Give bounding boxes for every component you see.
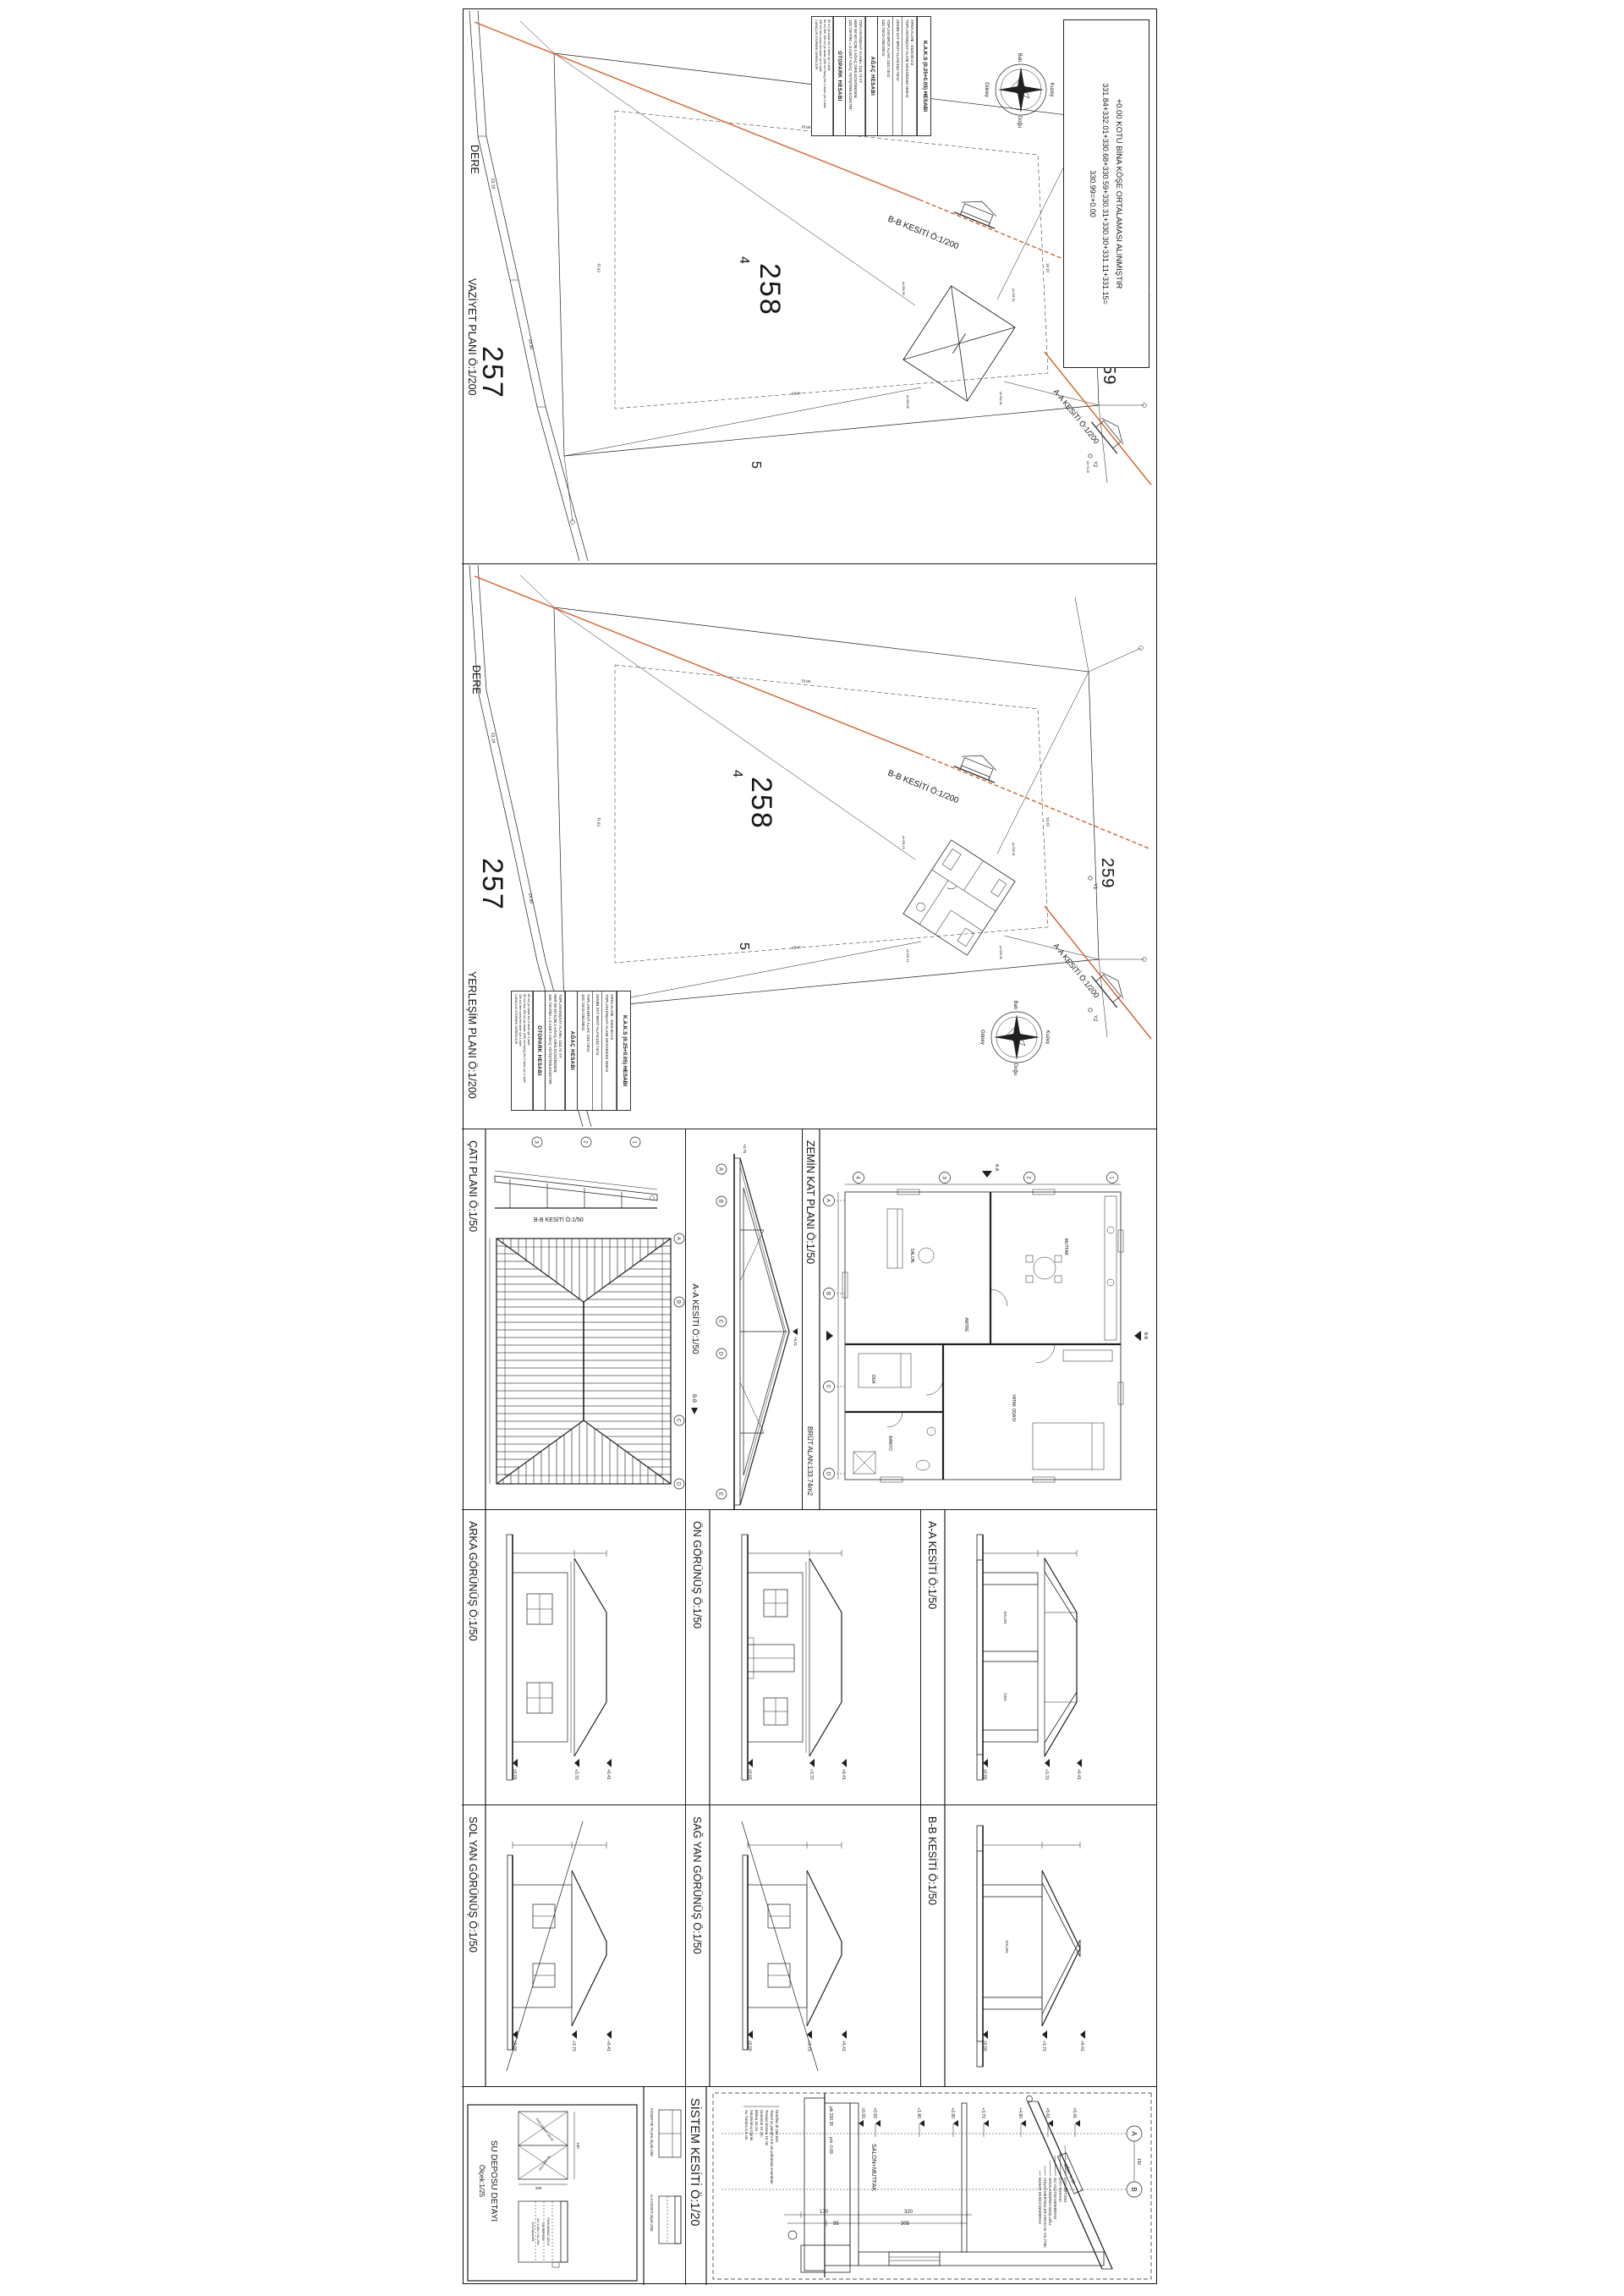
setback-line (615, 111, 1048, 409)
room-label-banyo: BANYO (887, 1436, 892, 1451)
yerlesim-plani-label: YERLEŞİM PLANI Ö:1/200 (466, 971, 478, 1099)
otopark-title: OTOPARK HESABI (833, 17, 846, 135)
svg-text:Doğu: Doğu (1012, 1063, 1018, 1075)
svg-text:3: 3 (534, 1140, 539, 1144)
corner-level: pk:330.59 (902, 282, 905, 295)
tank-plan-note: SU DEPOSU (538, 2155, 551, 2172)
section-line-aa (1045, 906, 1151, 1039)
svg-text:1: 1 (632, 1140, 637, 1144)
kaks-table-2: K.A.K.S (0.25+0.05) HESABI ARSA ALANI : … (511, 991, 631, 1111)
parcel-dim: 19.99 (801, 678, 811, 684)
sol-yan-gorunus-label: SOL YAN GÖRÜNÜŞ Ö:1/50 (467, 1816, 479, 1953)
tank-note: PASLANMAZ ÇELİK (546, 2218, 551, 2246)
roof-layer-note: AHŞAP MERTEKLER ARASI ISI YALITIMI (1043, 2178, 1047, 2248)
roof-detail-label: B-B KESİTİ Ö:1/50 (534, 1216, 584, 1223)
zemin-kat-plani-label: ZEMİN KAT PLANI Ö:1/50 (804, 1140, 816, 1264)
cati-plani-label: ÇATI PLANI Ö:1/50 (467, 1140, 479, 1232)
section-house-bb (954, 747, 1002, 783)
level-flag: +2.80 (950, 2107, 955, 2118)
su-deposu-scale: Ölçek:1/25 (478, 2165, 486, 2198)
grid-bubble-b: B (1130, 2187, 1138, 2191)
floor-layer-note: Blokaj 15 cm (754, 2110, 759, 2131)
dim-170: 170 (820, 2210, 829, 2215)
roof-layer-note: BUHAR KESİCİ MEMBRAN (1038, 2178, 1042, 2224)
tank-note: 2m3 kapasiteli (531, 2222, 535, 2242)
corner-level: pk:330.30 (999, 946, 1002, 959)
agac-title: AĞAÇ HESABI (865, 17, 878, 135)
stream-line (478, 11, 588, 561)
level-flag: ±0.00 (747, 1769, 752, 1780)
svg-text:Batı: Batı (1012, 1001, 1018, 1010)
svg-text:C: C (676, 1419, 681, 1423)
agac-row: HER 50 M2 İÇİN 1 AĞAÇ DİKİLECEĞİNDEN; (552, 994, 557, 1107)
svg-text:D: D (826, 1472, 831, 1476)
section-marker-aa: A-A (994, 1164, 999, 1172)
roof-layer-note: ÇATI TAHTASI (1058, 2178, 1062, 2202)
svg-text:1: 1 (1109, 1176, 1114, 1179)
svg-text:D: D (676, 1482, 681, 1486)
parcel-number-257: 257 (476, 346, 508, 399)
parcel-dim: 19.99 (801, 124, 811, 129)
level-flag: ±0.00 (860, 2108, 865, 2119)
level-flag: +6.41 (841, 2041, 846, 2052)
sol-yan-panel: +6.41 +3.70 ±0.00 SOL YAN GÖRÜNÜŞ Ö:1/50 (462, 1804, 686, 2086)
agac-row: 133.74m²/50 = 3 ADET AĞAÇ YETİŞTİRİLECEK… (848, 19, 853, 133)
stream-dim: 24.80 (527, 893, 534, 904)
room-label-oda: ODA (870, 1375, 875, 1385)
section-marker-bb: B-B (691, 1394, 696, 1403)
level-ridge: +6.41 (793, 1337, 798, 1347)
level-flag: +6.41 (606, 1769, 611, 1780)
level-flag: ±0.00 (982, 1769, 987, 1780)
svg-text:Doğu: Doğu (1017, 116, 1022, 128)
panel-divider (462, 563, 1156, 564)
roof-layer-note: SU YALITIM MEMBRANI (1053, 2178, 1057, 2219)
kaks-table-1: K.A.K.S (0.25+0.05) HESABI ARSA ALANI : … (811, 16, 931, 136)
section-label-bb: B-B KESİTİ Ö:1/200 (886, 213, 961, 252)
survey-point-y1: Y1 (1092, 883, 1097, 890)
roof-edge-detail: B-B KESİTİ Ö:1/50 (495, 1171, 657, 1223)
section-room-label: ODA (1003, 1693, 1007, 1701)
corner-level: pk:331.15 (902, 836, 905, 849)
corner-level: pk:330.31 (1012, 843, 1015, 856)
svg-text:B: B (826, 1292, 831, 1295)
kaks-row: ARSA ALANI : 8110.00 m2 (909, 19, 914, 133)
room-label-yatak: YATAK ODASI (1011, 1394, 1016, 1421)
sag-yan-panel: +6.41 +3.70 ±0.00 SAĞ YAN GÖRÜNÜŞ Ö:1/50 (686, 1804, 921, 2086)
compass-icon: Kuzey Doğu Güney Batı (984, 53, 1054, 129)
parcel-dim: 11.93 (596, 817, 601, 827)
svg-text:Kuzey: Kuzey (1049, 83, 1054, 97)
level-flag: +0.50 (872, 2107, 877, 2118)
foseptik-kesiti-label: A-A KESİTİ ölçek:1/50 (650, 2194, 654, 2232)
on-gorunus-label: ÖN GÖRÜNÜŞ Ö:1/50 (691, 1521, 703, 1629)
parcel-dim: 19.10 (1045, 263, 1051, 273)
floor-layer-note: Tesviye betonu 10 cm (765, 2110, 769, 2146)
parcel-number-4: 4 (737, 256, 751, 264)
agac-row: TOPLAM İNŞAAT ALANI= 133.74 m² (557, 994, 562, 1107)
section-label-aa: A-A KESİTİ Ö:1/200 (1051, 942, 1100, 1000)
svg-text:A: A (718, 1167, 723, 1171)
plk-level: plk:330.30 (828, 2106, 833, 2126)
room-label-antre: ANTRE (963, 1318, 968, 1333)
agac-row: 133.74m²/50 = 3 ADET AĞAÇ YETİŞTİRİLECEK… (547, 994, 552, 1107)
level-flag: +3.70 (806, 2041, 811, 2052)
kaks-row: ARSA ALANI : 8110.00 m2 (609, 994, 614, 1107)
roof-layer-note: HAVALANDIRMA BOŞLUĞU (1048, 2178, 1052, 2225)
kaks-row: TOPLAM BRÜT ALAN :133.74m2 (886, 19, 891, 133)
dim-320: 320 (904, 2210, 913, 2215)
svg-text:B: B (676, 1300, 681, 1304)
survey-point-y2-level: pk:+6.16 (1086, 461, 1089, 473)
level-flag: +4.80 (1018, 2107, 1023, 2118)
parcel-dim: 14.93 (791, 945, 801, 950)
parcel-number-257: 257 (476, 858, 508, 911)
panel-divider (462, 1509, 1156, 1510)
note-line1: +0.00 KOTU BİNA KÖŞE ORTALAMASI ALINMIŞT… (1115, 20, 1124, 367)
stream-dim: 23.19 (490, 733, 496, 744)
otopark-row: 1 ARAÇLIK OTOPARK GEREKLİDİR (814, 19, 818, 133)
kaks-title: K.A.K.S (0.25+0.05) HESABI (917, 17, 930, 135)
section-label-bb: B-B KESİTİ Ö:1/200 (886, 767, 961, 806)
floor-layer-note: Su Yalıtımı 0.5 cm (744, 2110, 749, 2140)
otopark-row: 80 m2 ye kadar her 3 daire için 1 adet (526, 994, 530, 1107)
sistem-kesiti-label: SİSTEM KESİTİ Ö:1/20 (688, 2098, 703, 2227)
tank-note: 2m 1.20m x h1.20m (536, 2218, 540, 2245)
room-label-mutfak: MUTFAK (1063, 1239, 1068, 1256)
room-label-salon: SALON (909, 1249, 914, 1263)
brut-alan-label: BRÜT ALAN:133.74m2 (806, 1426, 814, 1497)
level-flag: ±0.00 (982, 2041, 987, 2052)
tank-plan-note: PASLANMAZ ÇELİK (535, 2117, 556, 2142)
section-room-label: SALON (1005, 1941, 1009, 1953)
parcel-dim: 19.10 (1045, 817, 1051, 827)
svg-text:2: 2 (1026, 1176, 1031, 1179)
otopark-row: 80 m2 den 150 m2 ye kadar (150 m2 hariç)… (522, 994, 526, 1107)
sistem-kesiti-panel: A B 130 EĞİM % 33 ÇATI ÖRTÜSÜ ÇATI TAHTA… (686, 2086, 1156, 2285)
on-gorunus-panel: +6.41 +3.70 ±0.00 ÖN GÖRÜNÜŞ Ö:1/50 (686, 1509, 921, 1804)
section-line-bb (475, 576, 919, 754)
panel-divider (685, 1129, 686, 2285)
site-plan-vaziyet: 23.19 24.80 19.99 19.10 14.93 11.93 pk:3… (462, 9, 1156, 563)
level-flag: +3.70 (809, 1769, 814, 1780)
kaks-row: ZEMİN KAT BRÜT ALAN:133.74m2 (895, 19, 900, 133)
dim-305: 305 (901, 2222, 910, 2227)
level-flag: +3.70 (571, 2041, 576, 2052)
otopark-row: 80 m2 den 150 m2 ye kadar (150 m2 hariç)… (822, 19, 826, 133)
level-flag: +3.70 (573, 1769, 579, 1780)
cati-aa-kesiti: +6.41 +3.70 A B C D E B-B A-A KESİTİ Ö:1… (686, 1129, 803, 1509)
dim-95: 95 (833, 2222, 839, 2227)
kaks-row: TOPLAM İNŞAAT ALANI MAKSİMUM 250m2 (604, 994, 609, 1107)
cati-plani: B-B KESİTİ Ö:1/50 1 2 3 A B C D ÇATI PLA… (462, 1129, 686, 1509)
kaks-row: TOPLAM BRÜT ALAN :133.74m2 (585, 994, 590, 1107)
floor-layer-note: Drenflex Ø 150 mm (775, 2110, 779, 2142)
kaks-row: 133.74m2<250.00m2 (579, 994, 584, 1107)
building-footprint-roof (903, 286, 1015, 401)
floor-layer-note: Temel su yalıtımı 0.5 cm poliüretan memb… (770, 2110, 774, 2184)
svg-text:Batı: Batı (1017, 53, 1022, 63)
dere-label: DERE (470, 665, 482, 695)
svg-text:A: A (826, 1199, 831, 1202)
parcel-boundary (554, 607, 1099, 1010)
parcel-dim: 14.93 (791, 391, 801, 396)
note-line3: 330.99=+0.00 (1089, 20, 1098, 367)
level-flag: +3.70 (980, 2107, 985, 2118)
level-flag: +3.70 (1041, 2041, 1046, 2052)
su-deposu-title: SU DEPOSU DETAYI (489, 2140, 498, 2222)
section-line-aa (1045, 352, 1151, 485)
svg-text:A: A (676, 1237, 681, 1240)
setback-line (615, 665, 1048, 963)
parcel-number-4: 4 (730, 770, 744, 777)
svg-text:4: 4 (855, 1176, 860, 1179)
floor-layer-note: Sıkıştırılmış toprak (749, 2110, 754, 2141)
level-flag: +6.41 (1072, 2107, 1077, 2118)
svg-text:C: C (718, 1320, 723, 1324)
axis-dim-130: 130 (1136, 2158, 1141, 2166)
section-marker-bb: B-B (1143, 1332, 1148, 1340)
bb-kesiti-panel: SALON +6.41 +3.70 ±0.00 B-B KESİTİ Ö:1/5… (921, 1804, 1156, 2086)
svg-text:D: D (718, 1352, 723, 1356)
panel-divider (920, 1509, 921, 2086)
stream-dim: 23.19 (490, 179, 496, 190)
parcel-number-259: 259 (1098, 858, 1116, 888)
level-flag: ±0.00 (747, 2041, 752, 2052)
foseptik-plani-label: FOSEPTİK PLANI ölçek:1/50 (650, 2108, 654, 2156)
survey-point-y2: Y2 (1092, 1015, 1097, 1022)
zemin-kat-plani: SALON MUTFAK YATAK ODASI ODA BANYO ANTRE… (803, 1129, 1156, 1509)
corner-level: pk:332.01 (999, 392, 1002, 405)
level-flag: ±0.00 (512, 1769, 517, 1780)
svg-text:Güney: Güney (984, 82, 989, 97)
room-label-salon-mutfak: SALON+MUTFAK (870, 2144, 876, 2192)
parcel-number-5: 5 (749, 461, 763, 469)
tank-note: SU DEPOSU (541, 2222, 545, 2241)
arka-gorunus-label: ARKA GÖRÜNÜŞ Ö:1/50 (467, 1521, 479, 1641)
compass-icon: Kuzey Doğu Güney Batı (979, 1001, 1050, 1076)
kaks-row: TOPLAM İNŞAAT ALANI MAKSİMUM 250m2 (904, 19, 909, 133)
kaks-row: 133.74m2<250.00m2 (880, 19, 885, 133)
agac-row: HER 50 M2 İÇİN 1 AĞAÇ DİKİLECEĞİNDEN; (853, 19, 858, 133)
building-footprint-plan (903, 840, 1015, 955)
architectural-sheet-page: 23.19 24.80 19.99 19.10 14.93 11.93 pk:3… (0, 0, 1624, 2296)
grid-bubble-a: A (1130, 2131, 1138, 2136)
survey-point-y2: Y2 (1092, 461, 1097, 468)
level-flag: +6.41 (606, 2041, 611, 2052)
otopark-row: 80 m2 ye kadar her 3 daire için 1 adet (826, 19, 831, 133)
level-flag: +3.70 (1044, 1769, 1049, 1780)
sag-yan-gorunus-label: SAĞ YAN GÖRÜNÜŞ Ö:1/50 (691, 1816, 704, 1954)
section-label-aa: A-A KESİTİ Ö:1/200 (1051, 387, 1100, 446)
svg-text:Kuzey: Kuzey (1045, 1030, 1050, 1045)
roof-layer-note: ÇATI ÖRTÜSÜ (1063, 2178, 1067, 2202)
bb-kesiti-label: B-B KESİTİ Ö:1/50 (926, 1816, 938, 1905)
parcel-number-258: 258 (745, 777, 777, 830)
tank-dim-200: 200 (535, 2186, 542, 2190)
corner-level: pk:330.68 (906, 395, 909, 409)
level-flag: +6.41 (841, 1769, 846, 1780)
svg-text:B: B (718, 1200, 723, 1203)
agac-row: TOPLAM İNŞAAT ALANI= 133.74 m² (858, 19, 863, 133)
cati-aa-kesiti-label: A-A KESİTİ Ö:1/50 (690, 1283, 701, 1354)
svg-text:C: C (826, 1385, 831, 1389)
parcel-number-258: 258 (754, 263, 786, 316)
level-flag: +5.61 (1045, 2107, 1050, 2118)
panel-divider (802, 1129, 803, 1509)
floor-layer-note: Grobeton 10 cm (760, 2110, 764, 2137)
parcel-number-5: 5 (737, 942, 751, 950)
stream-dim: 24.80 (527, 338, 534, 350)
level-flag: +1.80 (916, 2107, 921, 2118)
drawing-sheet: 23.19 24.80 19.99 19.10 14.93 11.93 pk:3… (463, 8, 1157, 2284)
vaziyet-plani-label: VAZİYET PLANI Ö:1/200 (466, 278, 478, 396)
section-house-bb (954, 193, 1002, 228)
dere-label: DERE (469, 145, 480, 174)
corner-level: pk:331.11 (906, 949, 909, 963)
aa-kesiti-panel: SALON ODA +6.41 +3.70 ±0.00 A-A KESİTİ Ö… (921, 1509, 1156, 1804)
svg-text:3: 3 (941, 1176, 946, 1179)
otopark-row: 1 ARAÇLIK OTOPARK GEREKLİDİR (513, 994, 518, 1107)
aa-kesiti-label: A-A KESİTİ Ö:1/50 (926, 1521, 938, 1609)
svg-text:2: 2 (583, 1140, 588, 1144)
level-flag: +6.41 (1076, 1769, 1081, 1780)
kaks-row: ZEMİN KAT BRÜT ALAN:133.74m2 (595, 994, 600, 1107)
panel-divider (462, 1804, 1156, 1805)
corner-level: pk:331.84 (1012, 288, 1015, 302)
svg-text:Güney: Güney (979, 1030, 985, 1045)
otopark-title: OTOPARK HESABI (533, 991, 546, 1110)
agac-title: AĞAÇ HESABI (565, 991, 578, 1110)
kaks-title: K.A.K.S (0.25+0.05) HESABI (617, 991, 630, 1110)
parcel-dim: 11.93 (596, 263, 601, 273)
su-deposu-panel: FOSEPTİK PLANI ölçek:1/50 A-A KESİTİ ölç… (462, 2086, 686, 2285)
elevation-note-box: +0.00 KOTU BİNA KÖŞE ORTALAMASI ALINMIŞT… (1063, 19, 1149, 368)
note-line2: 331.84+332.01+330.68+330.59+330.31+330.3… (1102, 20, 1111, 367)
arka-gorunus-panel: +6.41 +3.70 ±0.00 ARKA GÖRÜNÜŞ Ö:1/50 (462, 1509, 686, 1804)
svg-text:E: E (718, 1492, 723, 1496)
tank-dim-130: 130 (576, 2142, 580, 2149)
panel-divider (462, 1129, 1156, 1129)
level-flag: ±0.00 (512, 2041, 517, 2052)
level-flag: +6.41 (1079, 2041, 1084, 2052)
level-eave: +3.70 (743, 1144, 747, 1154)
panel-divider (462, 2086, 1156, 2087)
prk-level: prk:-0.69 (828, 2137, 833, 2154)
section-room-label: SALON (1003, 1612, 1007, 1624)
